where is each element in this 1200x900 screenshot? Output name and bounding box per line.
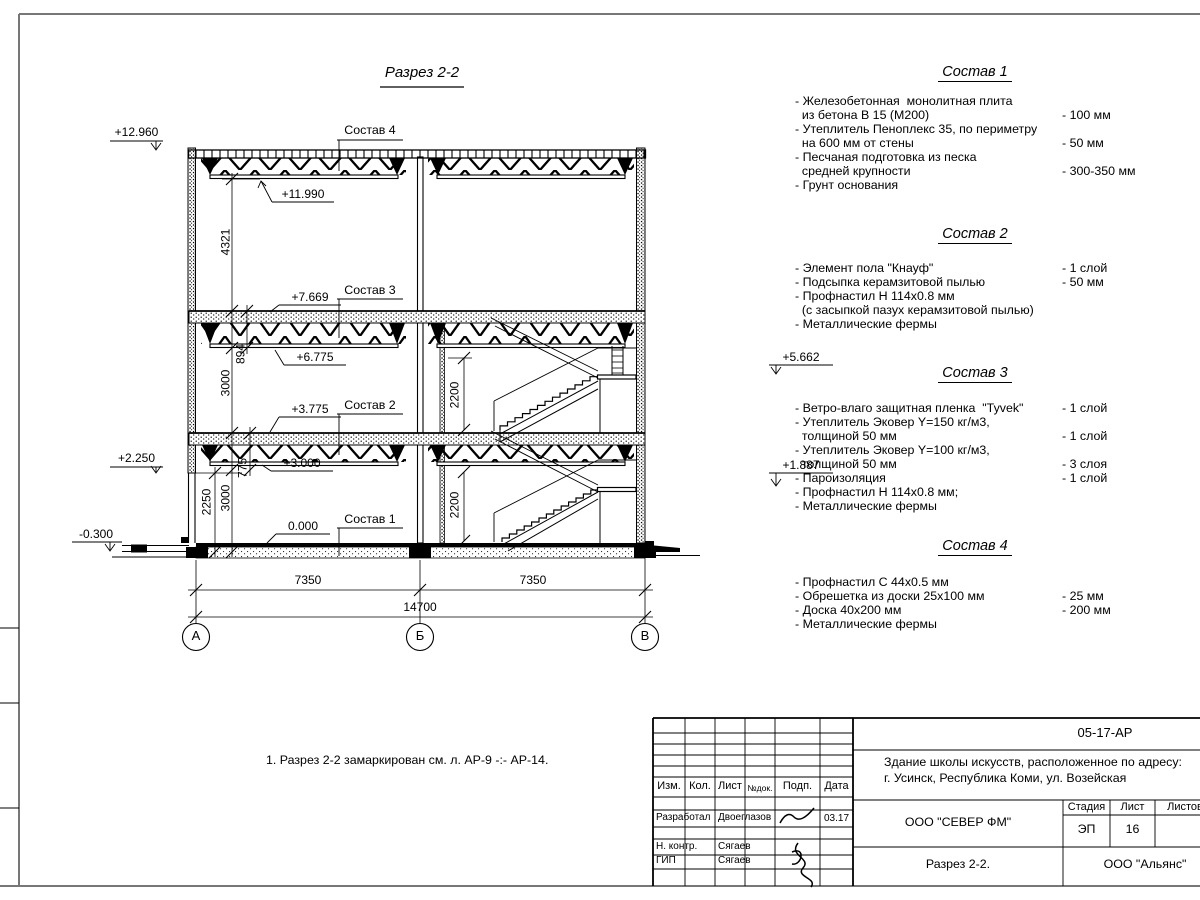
spec-row: из бетона В 15 (М200)- 100 мм bbox=[795, 108, 1200, 122]
spec-row: - Утеплитель Эковер Y=150 кг/м3, bbox=[795, 415, 1200, 429]
dimension-label: 7350 bbox=[503, 574, 563, 587]
spec-row: - Профнастил Н 114х0.8 мм; bbox=[795, 485, 1200, 499]
elevation-mark: +7.669 bbox=[279, 291, 341, 304]
wall-right bbox=[637, 148, 646, 543]
doc-number: 05-17-АР bbox=[1050, 726, 1160, 740]
axis-label: А bbox=[183, 629, 209, 643]
sheet-title: Разрез 2-2. bbox=[853, 858, 1063, 871]
dimension-label: 4321 bbox=[220, 229, 233, 256]
dimension-label: 2200 bbox=[449, 492, 462, 519]
spec-row: толщиной 50 мм- 3 слоя bbox=[795, 457, 1200, 471]
spec-row: - Железобетонная монолитная плита bbox=[795, 94, 1200, 108]
stage-value: ЭП bbox=[1063, 823, 1110, 836]
spec-row: (с засыпкой пазух керамзитовой пылью) bbox=[795, 303, 1200, 317]
frame-ticks bbox=[0, 628, 19, 808]
elevation-mark: +3.775 bbox=[279, 403, 341, 416]
sheet-number: 16 bbox=[1110, 823, 1155, 836]
spec-title: Состав 3 bbox=[938, 365, 1011, 383]
ground-slab bbox=[112, 537, 700, 558]
roof-truss bbox=[201, 158, 406, 175]
elevation-mark: +3.000 bbox=[271, 457, 333, 470]
spec-row: - Утеплитель Пеноплекс 35, по периметру bbox=[795, 122, 1200, 136]
callout-label: Состав 2 bbox=[337, 399, 403, 412]
spec-title: Состав 2 bbox=[938, 226, 1011, 244]
col-podp: Подп. bbox=[775, 781, 820, 793]
spec-row: - Ветро-влаго защитная пленка "Tyvek"- 1… bbox=[795, 401, 1200, 415]
axis-label: Б bbox=[407, 629, 433, 643]
contractor-name: ООО "Альянс" bbox=[1063, 858, 1200, 871]
role-developer: Разработал bbox=[656, 813, 710, 824]
spec-row: - Обрешетка из доски 25х100 мм- 25 мм bbox=[795, 589, 1200, 603]
spec-row: - Песчаная подготовка из песка bbox=[795, 150, 1200, 164]
col-list: Лист bbox=[715, 781, 745, 793]
spec-row: - Пароизоляция- 1 слой bbox=[795, 471, 1200, 485]
stage-label: Стадия bbox=[1063, 802, 1110, 814]
name-ncontr: Сягаев bbox=[718, 842, 751, 853]
column bbox=[418, 157, 424, 543]
callout-label: Состав 1 bbox=[337, 513, 403, 526]
spec-row: - Грунт основания bbox=[795, 178, 1200, 192]
project-name-line1: Здание школы искусств, расположенное по … bbox=[884, 756, 1182, 769]
spec-title: Состав 4 bbox=[938, 538, 1011, 556]
elevation-mark: +6.775 bbox=[284, 351, 346, 364]
spec-row: - Доска 40х200 мм- 200 мм bbox=[795, 603, 1200, 617]
signature-marks bbox=[780, 808, 814, 887]
ladder bbox=[612, 346, 623, 375]
sheet-label: Лист bbox=[1110, 802, 1155, 814]
org-name: ООО "СЕВЕР ФМ" bbox=[853, 816, 1063, 829]
spec-row: - Элемент пола "Кнауф"- 1 слой bbox=[795, 261, 1200, 275]
dimension-label: 14700 bbox=[386, 601, 454, 614]
spec-row: - Металлические фермы bbox=[795, 499, 1200, 513]
date-developer: 03.17 bbox=[820, 814, 853, 825]
spec-row: средней крупности- 300-350 мм bbox=[795, 164, 1200, 178]
drawing-title: Разрез 2-2 bbox=[378, 65, 466, 81]
spec-row: - Профнастил Н 114х0.8 мм bbox=[795, 289, 1200, 303]
note-text: 1. Разрез 2-2 замаркирован см. л. АР-9 -… bbox=[266, 754, 548, 767]
dimension-label: 775 bbox=[237, 458, 250, 478]
spec-row: - Металлические фермы bbox=[795, 617, 1200, 631]
name-developer: Двоеглазов bbox=[718, 813, 771, 824]
col-ndok: №док. bbox=[745, 784, 775, 793]
spec-row: на 600 мм от стены- 50 мм bbox=[795, 136, 1200, 150]
spec-row: - Подсыпка керамзитовой пылью- 50 мм bbox=[795, 275, 1200, 289]
spec-row: - Утеплитель Эковер Y=100 кг/м3, bbox=[795, 443, 1200, 457]
col-kol: Кол. bbox=[685, 781, 715, 793]
col-data: Дата bbox=[820, 781, 853, 793]
elevation-mark: +5.662 bbox=[769, 351, 833, 364]
callout-label: Состав 3 bbox=[337, 284, 403, 297]
dimension-label: 894 bbox=[235, 344, 248, 364]
dimension-label: 2200 bbox=[449, 382, 462, 409]
dimension-label: 2250 bbox=[201, 489, 214, 516]
col-izm: Изм. bbox=[653, 781, 685, 793]
callout-label: Состав 4 bbox=[337, 124, 403, 137]
spec-row: - Металлические фермы bbox=[795, 317, 1200, 331]
elevation-mark: +11.990 bbox=[272, 188, 334, 201]
elevation-mark: +12.960 bbox=[110, 126, 163, 139]
spec-title: Состав 1 bbox=[938, 64, 1011, 82]
role-ncontr: Н. контр. bbox=[656, 842, 697, 853]
name-gip: Сягаев bbox=[718, 856, 751, 867]
dimension-label: 3000 bbox=[220, 485, 233, 512]
elevation-mark: -0.300 bbox=[70, 528, 122, 541]
drawing-sheet: Разрез 2-2 +12.960 +11.990 +7.669 +6.775… bbox=[0, 0, 1200, 900]
project-name-line2: г. Усинск, Республика Коми, ул. Возейска… bbox=[884, 772, 1126, 785]
axis-label: В bbox=[632, 629, 658, 643]
role-gip: ГИП bbox=[656, 856, 676, 867]
spec-row: толщиной 50 мм- 1 слой bbox=[795, 429, 1200, 443]
elevation-mark: +2.250 bbox=[110, 452, 163, 465]
foundation-pad bbox=[186, 547, 208, 558]
elevation-mark: 0.000 bbox=[276, 520, 330, 533]
dimension-label: 3000 bbox=[220, 370, 233, 397]
sheets-label: Листов bbox=[1155, 802, 1200, 814]
dimension-label: 7350 bbox=[278, 574, 338, 587]
spec-row: - Профнастил С 44х0.5 мм bbox=[795, 575, 1200, 589]
foundation-pad bbox=[634, 547, 656, 558]
foundation-pad bbox=[409, 547, 431, 558]
